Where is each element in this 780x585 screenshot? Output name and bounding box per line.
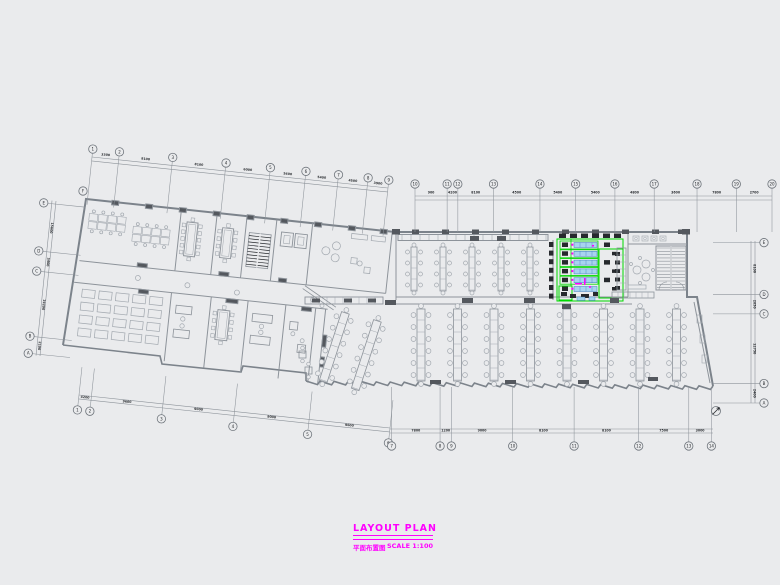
plan-subtitle-cn: 平面布置图 (353, 542, 386, 552)
svg-text:A: A (27, 351, 30, 356)
svg-text:6: 6 (305, 169, 308, 174)
dining-hall-furniture (299, 229, 690, 398)
svg-text:2850: 2850 (753, 300, 757, 310)
svg-text:C: C (35, 269, 38, 274)
svg-text:12: 12 (636, 444, 642, 449)
svg-text:4800: 4800 (630, 190, 640, 194)
svg-text:6000: 6000 (243, 167, 253, 172)
svg-text:3900: 3900 (373, 181, 383, 186)
svg-text:5: 5 (269, 165, 272, 170)
svg-text:D: D (762, 292, 765, 297)
svg-text:7: 7 (337, 172, 340, 177)
svg-text:14: 14 (709, 444, 715, 449)
svg-text:8100: 8100 (753, 264, 757, 274)
svg-text:16: 16 (612, 182, 618, 187)
svg-text:B: B (763, 381, 766, 386)
svg-text:10: 10 (510, 444, 516, 449)
svg-text:5400: 5400 (591, 190, 601, 194)
svg-text:8100: 8100 (602, 429, 612, 433)
svg-text:11: 11 (572, 444, 578, 449)
building-walls (63, 199, 713, 386)
svg-text:4500: 4500 (348, 178, 358, 183)
svg-text:13: 13 (686, 444, 692, 449)
svg-text:9: 9 (450, 444, 453, 449)
svg-text:5400: 5400 (46, 257, 51, 267)
kitchen-highlight-zone (549, 234, 623, 302)
svg-text:18: 18 (694, 182, 700, 187)
svg-text:8: 8 (367, 175, 370, 180)
svg-text:10: 10 (412, 182, 418, 187)
svg-text:2100: 2100 (37, 341, 42, 351)
svg-text:2700: 2700 (750, 190, 760, 194)
svg-text:2: 2 (118, 149, 121, 154)
svg-text:11: 11 (445, 182, 451, 187)
svg-text:2: 2 (89, 409, 92, 414)
svg-text:8100: 8100 (471, 190, 481, 194)
svg-text:5: 5 (306, 432, 309, 437)
svg-text:14: 14 (537, 182, 543, 187)
svg-text:4: 4 (225, 160, 228, 165)
svg-text:4500: 4500 (512, 190, 522, 194)
svg-text:900: 900 (428, 190, 435, 194)
svg-text:8100: 8100 (141, 157, 151, 162)
svg-text:3000: 3000 (696, 429, 706, 433)
svg-text:4: 4 (232, 424, 235, 429)
cad-viewport: 1234567893300810081006000540054004500390… (0, 0, 780, 585)
svg-text:7800: 7800 (411, 429, 421, 433)
title-underline (353, 535, 433, 540)
svg-text:7500: 7500 (659, 429, 669, 433)
svg-text:5400: 5400 (283, 171, 293, 176)
svg-text:8100: 8100 (539, 429, 549, 433)
stair-core (612, 236, 707, 363)
svg-text:B: B (29, 334, 32, 339)
title-block: LAYOUT PLAN 平面布置图 SCALE 1:100 (353, 523, 433, 552)
svg-text:19: 19 (734, 182, 740, 187)
svg-text:4200: 4200 (448, 190, 458, 194)
svg-text:1: 1 (76, 407, 79, 412)
svg-text:3300: 3300 (101, 152, 111, 157)
svg-text:8100: 8100 (194, 162, 204, 167)
svg-text:C: C (763, 311, 766, 316)
svg-text:A: A (763, 401, 766, 406)
svg-text:3: 3 (171, 155, 174, 160)
plan-title: LAYOUT PLAN (353, 523, 433, 534)
svg-text:13: 13 (491, 182, 497, 187)
svg-text:17: 17 (652, 182, 658, 187)
svg-text:5400: 5400 (317, 175, 327, 180)
svg-text:D: D (37, 248, 40, 253)
floor-plan-canvas: 1234567893300810081006000540054004500390… (0, 0, 780, 585)
svg-text:9000: 9000 (478, 429, 488, 433)
svg-text:8: 8 (439, 444, 442, 449)
svg-text:20: 20 (769, 182, 775, 187)
svg-text:1200: 1200 (441, 429, 451, 433)
svg-text:7800: 7800 (712, 190, 722, 194)
svg-text:15: 15 (573, 182, 579, 187)
dimension-grid-annotations: 1234567893300810081006000540054004500390… (24, 145, 776, 450)
svg-text:2400: 2400 (753, 389, 757, 399)
svg-text:12: 12 (455, 182, 461, 187)
svg-text:3: 3 (160, 416, 163, 421)
plan-scale: SCALE 1:100 (387, 542, 433, 552)
svg-text:5400: 5400 (553, 190, 563, 194)
svg-text:12750: 12750 (753, 343, 757, 355)
svg-text:3600: 3600 (671, 190, 681, 194)
